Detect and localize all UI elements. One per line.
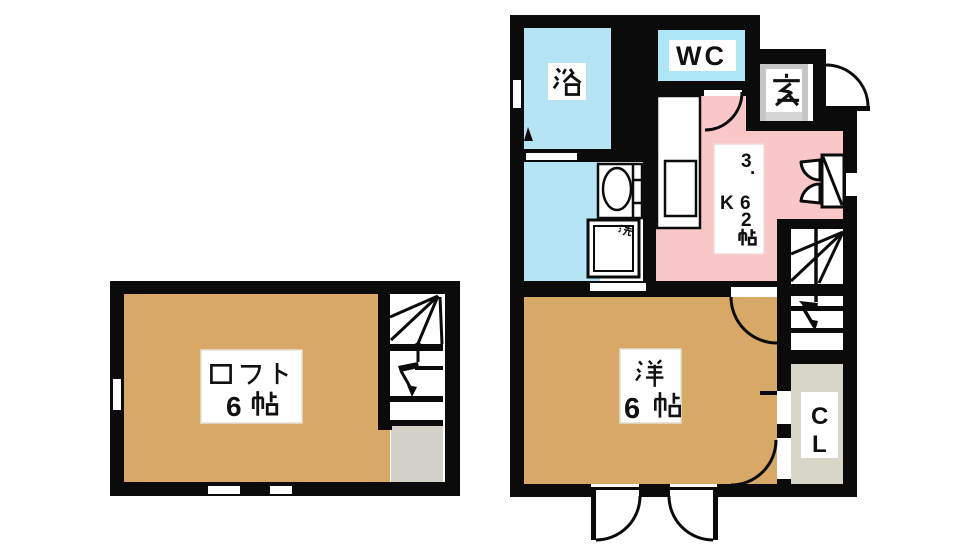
svg-text:6: 6 bbox=[226, 391, 242, 422]
svg-text:2: 2 bbox=[741, 210, 752, 231]
svg-text:.: . bbox=[750, 158, 755, 179]
svg-text:L: L bbox=[812, 431, 827, 458]
svg-text:6: 6 bbox=[624, 393, 640, 425]
svg-text:WC: WC bbox=[676, 41, 727, 71]
svg-text:K: K bbox=[720, 193, 734, 214]
svg-text:C: C bbox=[811, 403, 828, 430]
